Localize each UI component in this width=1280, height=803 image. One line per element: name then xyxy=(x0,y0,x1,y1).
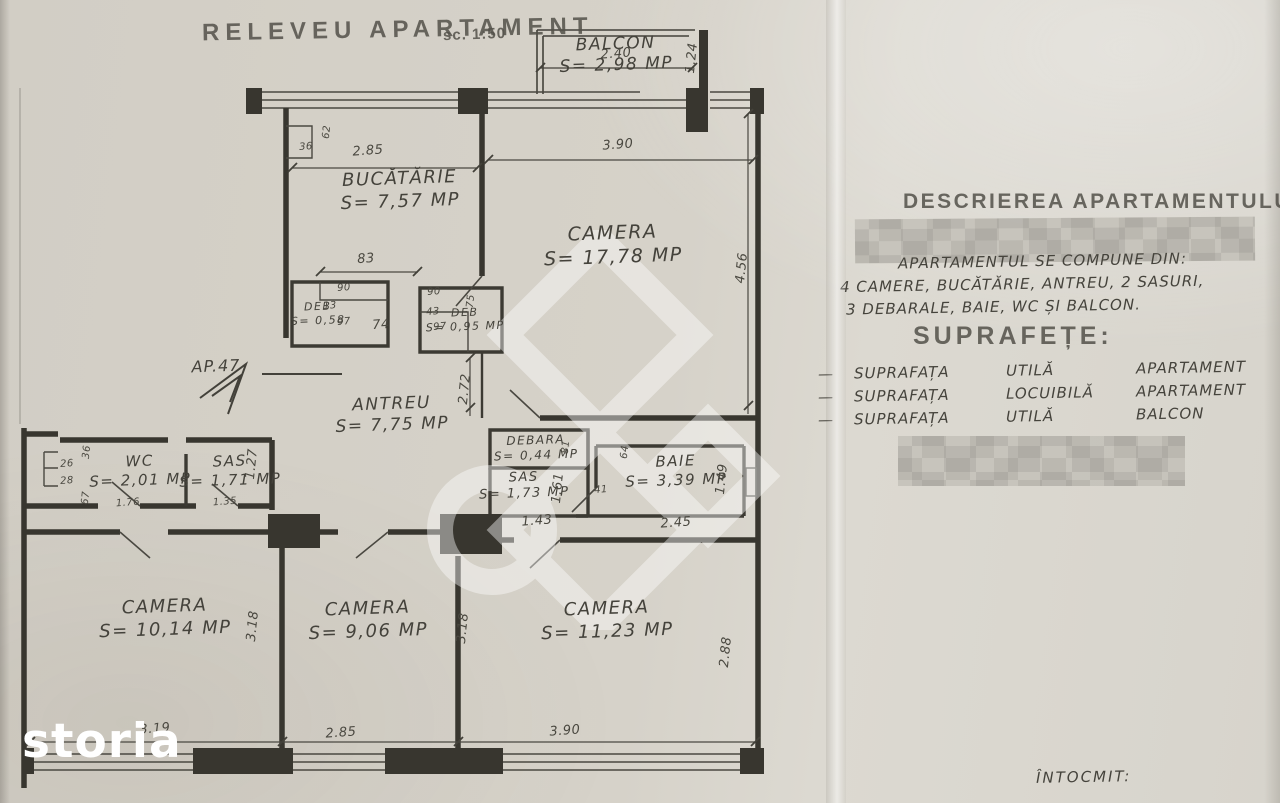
room-name: CAMERA xyxy=(324,597,410,622)
room-area: S= 10,14 MP xyxy=(99,616,232,643)
room-area: S= 3,39 MP xyxy=(625,469,728,491)
dim-debara-height: 81 xyxy=(560,440,572,455)
room-name: SAS xyxy=(212,451,246,471)
dim-camera-mare-width: 3.90 xyxy=(602,136,634,153)
room-label-camera2: CAMERA S= 9,06 MP xyxy=(308,596,429,645)
suprafete-heading: SUPRAFEȚE: xyxy=(913,322,1113,351)
dim-wc-width: 1.76 xyxy=(116,497,141,510)
dim-sas2-height: 1.61 xyxy=(549,472,567,504)
room-label-camera3: CAMERA S= 11,23 MP xyxy=(540,596,674,646)
top-windows xyxy=(262,92,750,108)
dim-camera2-width: 2.85 xyxy=(325,724,357,741)
dim-corridor-width: 74 xyxy=(372,317,391,333)
room-name: BAIE xyxy=(655,451,696,471)
dim-baie-height: 1.49 xyxy=(713,463,731,495)
dim-camera3-height: 2.88 xyxy=(717,636,735,668)
row-type: LOCUIBILĂ xyxy=(1006,383,1136,403)
dim-baie-door: 41 xyxy=(594,484,608,496)
row-object: BALCON xyxy=(1136,403,1280,424)
apartment-number-label: AP.47 xyxy=(191,356,240,377)
plan-scale: sc. 1:50 xyxy=(443,25,507,44)
floorplan-drawing xyxy=(0,0,1280,803)
dim-deb1-depth: 97 xyxy=(337,316,351,328)
room-area: S= 1,71 MP xyxy=(179,469,282,491)
dim-bucatarie-jog-h: 62 xyxy=(321,125,333,140)
row-object: APARTAMENT xyxy=(1136,380,1280,401)
dim-camera-mare-height: 4.56 xyxy=(733,252,751,284)
scanned-floorplan-document: { "title": {"main": "RELEVEU APARTAMENT"… xyxy=(0,0,1280,803)
dim-sas1-width: 1.35 xyxy=(213,496,238,509)
dim-antreu-height: 2.72 xyxy=(456,373,474,405)
dim-deb1-step: 13 xyxy=(323,300,337,312)
row-type: UTILĂ xyxy=(1006,405,1136,425)
dim-deb-span: 83 xyxy=(357,251,376,267)
room-area: S= 7,75 MP xyxy=(335,413,449,438)
description-heading: DESCRIEREA APARTAMENTULUI xyxy=(903,190,1280,214)
room-name: CAMERA xyxy=(121,595,207,620)
storia-logo: storia xyxy=(22,714,182,769)
dim-deb2-step: 43 xyxy=(426,306,440,318)
row-dash: — xyxy=(818,410,854,429)
room-name: WC xyxy=(125,452,154,472)
row-dash: — xyxy=(818,364,854,383)
balcony-wall-pier xyxy=(699,30,708,96)
dim-deb2-depth: 97 xyxy=(433,321,447,333)
dim-camera3-width: 3.90 xyxy=(549,722,581,739)
room-area: S= 2,01 MP xyxy=(89,469,192,491)
redacted-block-bottom xyxy=(898,436,1185,486)
room-area: S= 7,57 MP xyxy=(340,188,460,215)
room-label-camera-mare: CAMERA S= 17,78 MP xyxy=(543,220,683,272)
room-area: S= 11,23 MP xyxy=(541,618,674,645)
dim-baie-width: 2.45 xyxy=(660,514,692,531)
dim-bucatarie-jog-w: 36 xyxy=(299,141,313,153)
dim-bucatarie-width: 2.85 xyxy=(352,142,384,159)
dim-sas1-height: 1.27 xyxy=(243,448,261,480)
row-object: APARTAMENT xyxy=(1136,357,1280,378)
row-dash: — xyxy=(818,387,854,406)
room-name: CAMERA xyxy=(567,220,658,247)
room-label-camera1: CAMERA S= 10,14 MP xyxy=(98,594,232,644)
dim-balcon-height: 1.24 xyxy=(683,42,701,74)
room-area: S= 9,06 MP xyxy=(308,618,428,645)
dim-balcon-width: 2.40 xyxy=(600,45,632,62)
dim-wc-jog: 36 xyxy=(81,445,93,460)
room-label-baie: BAIE S= 3,39 MP xyxy=(624,450,727,491)
dim-baie-nisa: 64 xyxy=(619,445,631,460)
intocmit-label: ÎNTOCMIT: xyxy=(1036,767,1132,787)
room-label-sas1: SAS S= 1,71 MP xyxy=(178,450,281,491)
room-label-bucatarie: BUCĂTĂRIE S= 7,57 MP xyxy=(340,166,461,215)
dim-camera2-height: 3.18 xyxy=(454,612,472,644)
row-label: SUPRAFAȚA xyxy=(854,385,1006,406)
room-name: ANTREU xyxy=(352,393,431,417)
dim-deb1-width: 90 xyxy=(337,282,351,294)
dim-camera1-height: 3.18 xyxy=(244,610,262,642)
row-type: UTILĂ xyxy=(1006,360,1136,380)
row-label: SUPRAFAȚA xyxy=(854,362,1006,383)
dim-deb2-height: 75 xyxy=(465,294,477,309)
dim-deb2-width: 90 xyxy=(427,286,441,298)
room-label-antreu: ANTREU S= 7,75 MP xyxy=(334,392,449,438)
room-name: SAS xyxy=(508,469,538,486)
row-label: SUPRAFAȚA xyxy=(854,408,1006,429)
room-label-wc: WC S= 2,01 MP xyxy=(88,450,191,491)
dim-wc-step26: 26 xyxy=(60,458,74,470)
dim-wc-step67: 67 xyxy=(80,491,92,506)
room-name: CAMERA xyxy=(563,597,649,622)
room-area: S= 17,78 MP xyxy=(544,243,684,272)
dim-wc-step28: 28 xyxy=(60,475,74,487)
dim-sas2-width: 1.43 xyxy=(521,512,553,529)
